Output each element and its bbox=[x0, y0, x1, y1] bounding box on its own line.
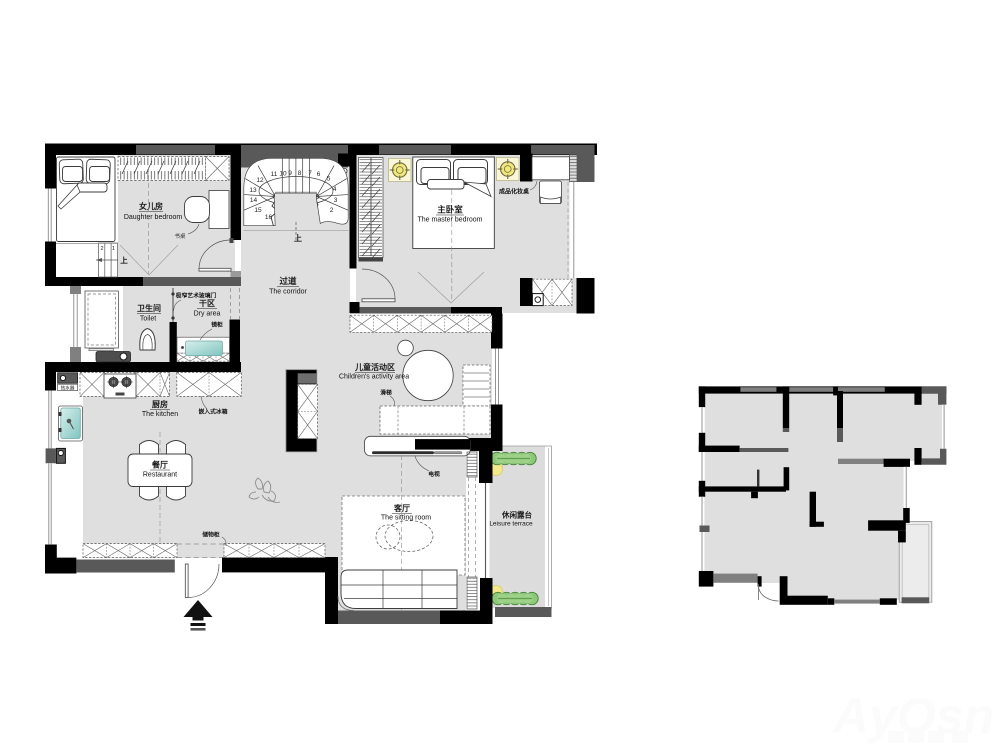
svg-text:女儿房: 女儿房 bbox=[139, 201, 163, 211]
svg-text:10: 10 bbox=[279, 171, 287, 178]
svg-text:儿童活动区: 儿童活动区 bbox=[354, 362, 395, 372]
svg-text:The master bedroom: The master bedroom bbox=[418, 217, 483, 224]
svg-text:16: 16 bbox=[265, 214, 273, 221]
svg-text:3: 3 bbox=[334, 197, 338, 204]
svg-text:Toilet: Toilet bbox=[140, 316, 156, 323]
svg-text:1: 1 bbox=[112, 246, 115, 252]
svg-text:储物柜: 储物柜 bbox=[201, 531, 220, 539]
svg-text:上: 上 bbox=[294, 233, 302, 243]
svg-text:11: 11 bbox=[271, 171, 278, 178]
svg-text:嵌入式冰箱: 嵌入式冰箱 bbox=[199, 408, 228, 416]
svg-text:The sitting room: The sitting room bbox=[381, 515, 431, 522]
svg-text:成品化妆桌: 成品化妆桌 bbox=[499, 188, 529, 196]
svg-text:Leisure terrace: Leisure terrace bbox=[489, 521, 533, 528]
svg-text:Daughter bedroom: Daughter bedroom bbox=[124, 214, 183, 221]
svg-text:休闲露台: 休闲露台 bbox=[501, 510, 532, 520]
svg-text:2: 2 bbox=[330, 207, 334, 214]
svg-text:The kitchen: The kitchen bbox=[142, 411, 178, 418]
svg-text:书桌: 书桌 bbox=[174, 232, 186, 240]
svg-text:6: 6 bbox=[317, 171, 321, 178]
svg-text:4: 4 bbox=[333, 186, 337, 193]
svg-text:5: 5 bbox=[327, 176, 331, 183]
svg-text:Children's activity area: Children's activity area bbox=[339, 374, 409, 381]
svg-text:7: 7 bbox=[308, 170, 312, 177]
svg-text:12: 12 bbox=[256, 177, 264, 184]
svg-text:Dry area: Dry area bbox=[194, 311, 221, 318]
svg-text:厨房: 厨房 bbox=[152, 399, 168, 409]
svg-text:卫生间: 卫生间 bbox=[137, 303, 161, 313]
svg-text:15: 15 bbox=[254, 207, 262, 214]
svg-text:Restaurant: Restaurant bbox=[143, 472, 177, 479]
svg-text:餐厅: 餐厅 bbox=[151, 460, 168, 470]
svg-text:过道: 过道 bbox=[279, 276, 297, 286]
svg-text:13: 13 bbox=[249, 187, 257, 194]
svg-text:14: 14 bbox=[250, 197, 258, 204]
svg-text:主卧室: 主卧室 bbox=[437, 205, 463, 215]
svg-text:电视: 电视 bbox=[428, 470, 440, 478]
svg-text:热水器: 热水器 bbox=[61, 384, 75, 391]
svg-text:滑梯: 滑梯 bbox=[380, 389, 392, 397]
svg-text:The corridor: The corridor bbox=[269, 289, 307, 296]
svg-text:上: 上 bbox=[120, 255, 128, 265]
svg-text:镜柜: 镜柜 bbox=[211, 321, 223, 329]
svg-text:干区: 干区 bbox=[199, 299, 215, 308]
svg-text:2: 2 bbox=[100, 246, 103, 252]
svg-text:9: 9 bbox=[288, 170, 292, 177]
svg-text:8: 8 bbox=[298, 170, 302, 177]
